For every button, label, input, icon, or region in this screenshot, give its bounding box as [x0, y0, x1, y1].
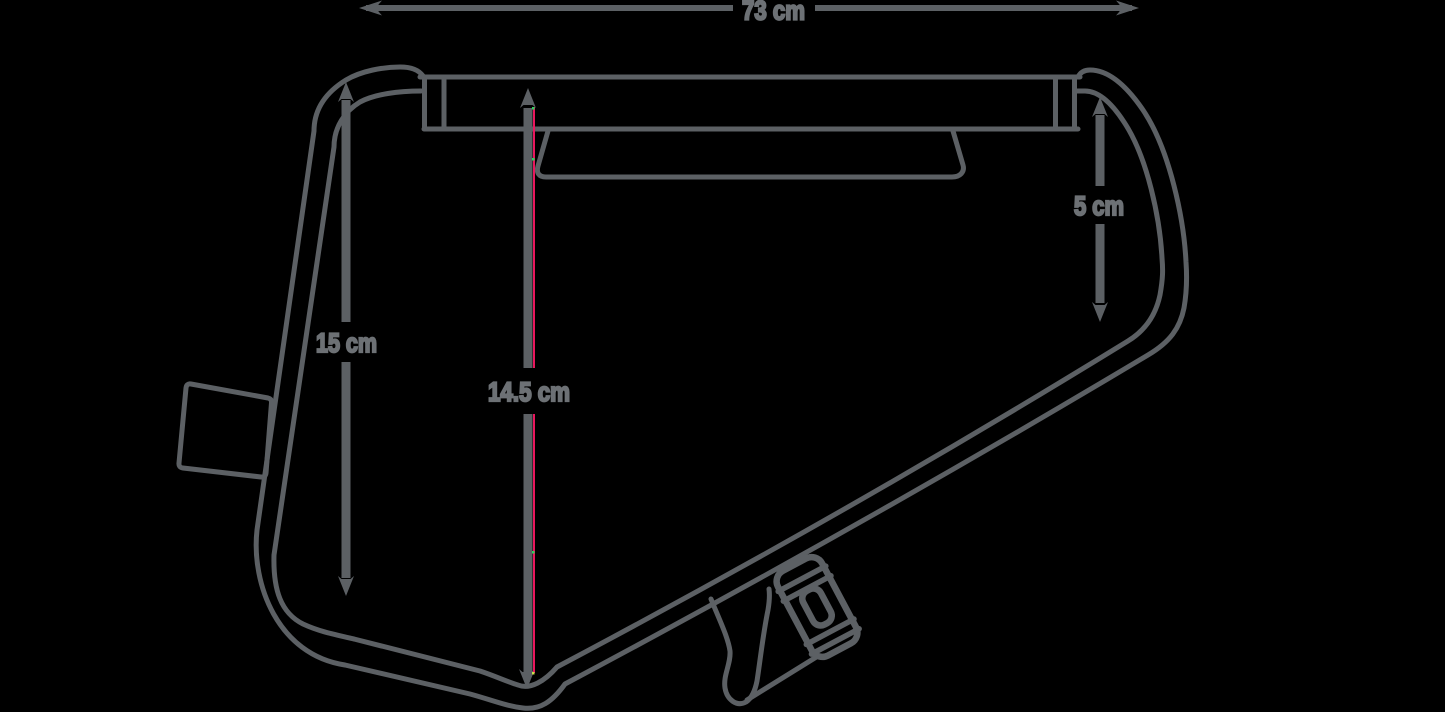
- svg-text:73 cm: 73 cm: [742, 0, 805, 26]
- svg-text:15 cm: 15 cm: [316, 328, 377, 358]
- svg-text:5 cm: 5 cm: [1074, 191, 1124, 221]
- svg-text:14.5 cm: 14.5 cm: [488, 377, 570, 407]
